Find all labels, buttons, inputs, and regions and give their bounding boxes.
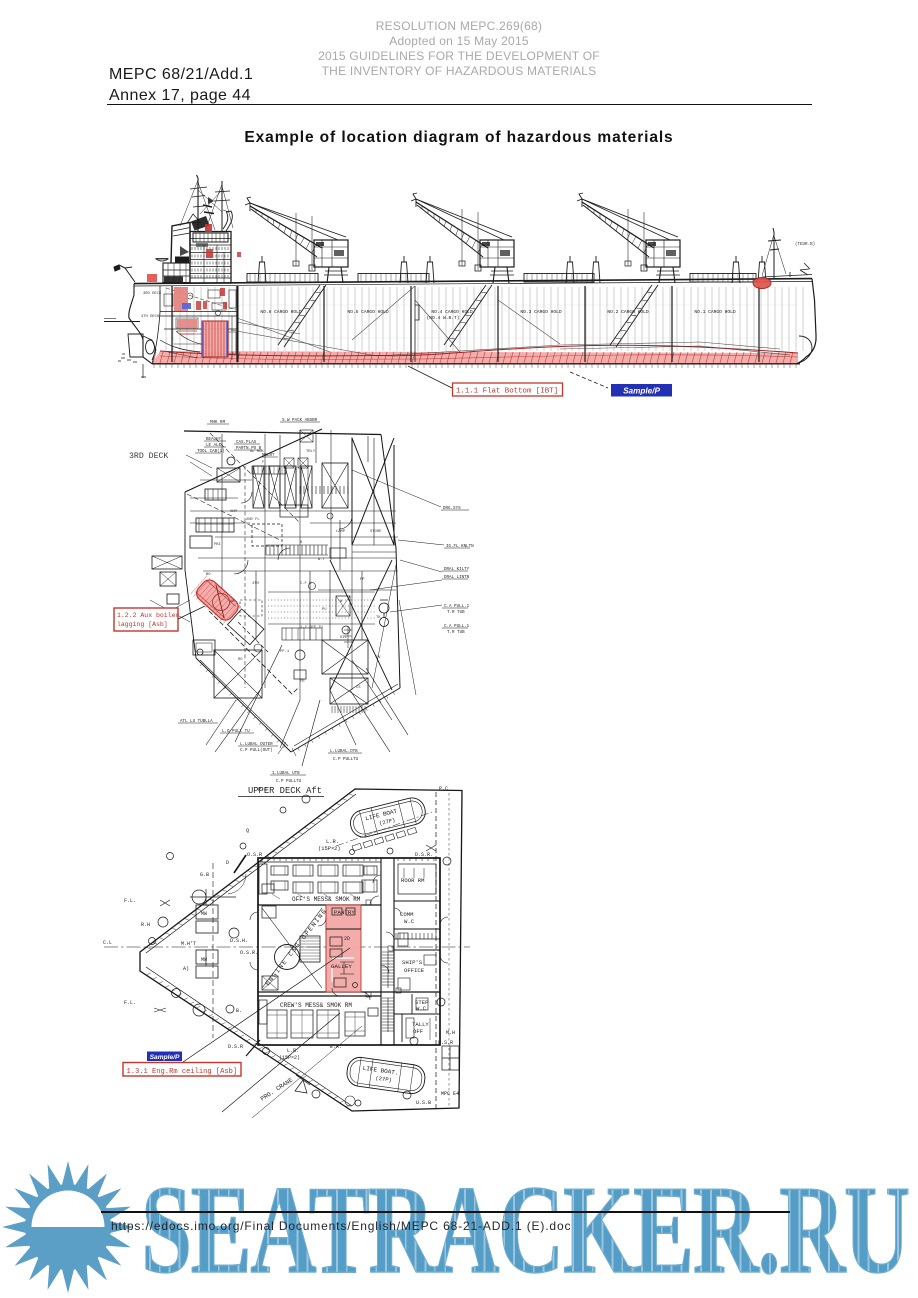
svg-text:(15P×2): (15P×2): [318, 846, 341, 852]
svg-text:W: W: [340, 600, 343, 604]
svg-text:L.R.: L.R.: [326, 839, 339, 845]
svg-text:O.S.R: O.S.R: [247, 852, 262, 858]
svg-text:1.LUBAL UTB: 1.LUBAL UTB: [272, 772, 300, 776]
svg-text:GALLEY: GALLEY: [331, 963, 352, 970]
svg-text:4TH: 4TH: [252, 582, 259, 586]
svg-text:(27P): (27P): [375, 1075, 392, 1084]
svg-text:4TH DECK: 4TH DECK: [141, 315, 160, 319]
svg-text:COMM: COMM: [400, 911, 413, 918]
svg-text:(NO.4 W.B.T): (NO.4 W.B.T): [426, 315, 459, 321]
svg-text:3RD DECK: 3RD DECK: [129, 452, 168, 461]
svg-text:AHM: AHM: [230, 510, 238, 514]
svg-text:F: F: [262, 461, 265, 465]
svg-text:PP: PP: [360, 578, 365, 582]
svg-text:OFF'S MESS& SMOK RM: OFF'S MESS& SMOK RM: [292, 896, 361, 903]
svg-text:B.: B.: [236, 1008, 242, 1014]
svg-text:D.S.R: D.S.R: [228, 1044, 243, 1050]
svg-text:SHIP'S: SHIP'S: [402, 959, 423, 966]
svg-text:IG.FL KNLTN: IG.FL KNLTN: [446, 545, 474, 549]
svg-text:NO.1 CARGO HOLD: NO.1 CARGO HOLD: [694, 309, 736, 315]
svg-text:D.S.H.: D.S.H.: [230, 938, 248, 944]
svg-text:F.L.: F.L.: [124, 898, 136, 904]
svg-text:W.C: W.C: [404, 918, 415, 925]
svg-text:Sample/P: Sample/P: [150, 1054, 180, 1061]
svg-text:RO: RO: [238, 658, 243, 662]
svg-text:LE ALE: LE ALE: [206, 444, 222, 448]
svg-text:TK: TK: [376, 616, 381, 620]
svg-text:MHK RM: MHK RM: [210, 421, 226, 425]
svg-text:C.P PULLTU: C.P PULLTU: [333, 758, 359, 762]
svg-text:P.C: P.C: [258, 787, 267, 793]
svg-text:1-2.SEP.TU: 1-2.SEP.TU: [300, 626, 324, 630]
svg-text:(TEUR.B): (TEUR.B): [795, 242, 815, 247]
svg-text:M.H: M.H: [446, 1030, 455, 1036]
svg-text:OFF: OFF: [413, 1028, 423, 1035]
svg-text:L.LUBAL.OTB: L.LUBAL.OTB: [330, 750, 358, 754]
svg-text:BO: BO: [206, 573, 211, 577]
svg-text:M.H'T: M.H'T: [181, 941, 196, 947]
svg-text:Q: Q: [246, 828, 249, 834]
svg-text:D: D: [226, 860, 229, 866]
svg-text:L.LUBAL OUTER: L.LUBAL OUTER: [240, 743, 273, 747]
svg-text:2ND FL: 2ND FL: [246, 518, 260, 522]
svg-text:MPC E4: MPC E4: [441, 1091, 459, 1097]
svg-text:S.W PACK ABSBR: S.W PACK ABSBR: [282, 419, 318, 423]
svg-text:(15P×2): (15P×2): [279, 1055, 300, 1061]
svg-text:U.S.B: U.S.B: [416, 1100, 431, 1106]
svg-text:W.C: W.C: [416, 1005, 427, 1012]
svg-text:U.S.R: U.S.R: [438, 1040, 453, 1046]
svg-text:CREW'S MESS& SMOK RM: CREW'S MESS& SMOK RM: [280, 1002, 352, 1009]
svg-text:OFFICE: OFFICE: [404, 967, 425, 974]
svg-text:FR: FR: [300, 680, 305, 684]
svg-text:CAS.PLAS: CAS.PLAS: [236, 441, 257, 445]
svg-text:EV: EV: [376, 656, 381, 660]
svg-text:NO.3 CARGO HOLD: NO.3 CARGO HOLD: [520, 309, 562, 315]
svg-text:C.A PULL.1: C.A PULL.1: [444, 625, 470, 629]
svg-text:C.A PULL.1: C.A PULL.1: [444, 605, 470, 609]
svg-text:C.F.W: C.F.W: [300, 582, 312, 586]
svg-text:1.3.1 Eng.Rm ceiling [Asb]: 1.3.1 Eng.Rm ceiling [Asb]: [127, 1068, 238, 1076]
svg-text:PRO. CRANE: PRO. CRANE: [259, 1076, 294, 1102]
svg-text:D.S.R.: D.S.R.: [415, 852, 433, 858]
svg-text:2D: 2D: [344, 936, 350, 942]
svg-text:NO.6 CARGO HOLD: NO.6 CARGO HOLD: [260, 309, 302, 315]
svg-text:L.O PULL TU: L.O PULL TU: [222, 730, 250, 734]
svg-text:ROOR RM: ROOR RM: [401, 877, 425, 884]
svg-text:DRAL LINTN: DRAL LINTN: [444, 576, 470, 580]
svg-text:T.R TUB: T.R TUB: [447, 611, 465, 615]
svg-text:G.B: G.B: [200, 872, 209, 878]
svg-text:BEACHY: BEACHY: [206, 438, 222, 442]
svg-text:1.1.1 Flat Bottom [IBT]: 1.1.1 Flat Bottom [IBT]: [456, 388, 558, 396]
svg-text:lagging [Asb]: lagging [Asb]: [117, 621, 168, 628]
svg-text:LAMP: LAMP: [336, 530, 346, 534]
svg-text:PU: PU: [322, 608, 327, 612]
svg-text:E.R.: E.R.: [330, 1044, 342, 1050]
svg-text:ATL LU TUBLLA: ATL LU TUBLLA: [180, 720, 213, 724]
svg-text:1.2.2 Aux boiler: 1.2.2 Aux boiler: [117, 612, 180, 619]
svg-text:MELR?: MELR?: [262, 454, 275, 458]
svg-text:AB: AB: [230, 600, 235, 604]
svg-text:3RD DECK: 3RD DECK: [143, 292, 162, 296]
svg-text:AL MOK: AL MOK: [250, 450, 264, 454]
svg-text:OIL: OIL: [340, 636, 348, 640]
svg-text:TRLY: TRLY: [306, 450, 316, 454]
svg-text:PP.1: PP.1: [280, 650, 290, 654]
svg-text:C.P PULL(OUT): C.P PULL(OUT): [240, 748, 273, 753]
svg-text:DRG.SYS: DRG.SYS: [443, 507, 461, 511]
svg-text:PANTRY: PANTRY: [334, 909, 355, 916]
svg-text:B: B: [300, 541, 303, 545]
svg-text:A): A): [183, 966, 189, 972]
svg-text:TALLY: TALLY: [412, 1021, 429, 1028]
svg-text:C.L: C.L: [103, 940, 112, 946]
svg-text:CS: CS: [356, 686, 361, 690]
svg-text:O.S.R.: O.S.R.: [240, 950, 258, 956]
svg-text:Sample/P: Sample/P: [623, 387, 660, 396]
svg-text:MW: MW: [201, 957, 207, 963]
svg-text:STORE: STORE: [370, 530, 382, 534]
svg-text:MW: MW: [201, 911, 207, 917]
svg-text:T.R TUB: T.R TUB: [447, 631, 465, 635]
svg-text:P.C: P.C: [439, 786, 448, 792]
svg-text:W.T: W.T: [318, 558, 326, 562]
svg-text:PBI: PBI: [214, 543, 221, 547]
svg-text:DRAL KILTY: DRAL KILTY: [444, 568, 470, 572]
svg-text:F.L.: F.L.: [124, 1000, 136, 1006]
svg-text:R.H: R.H: [141, 922, 150, 928]
svg-text:NO.2 CARGO HOLD: NO.2 CARGO HOLD: [607, 309, 649, 315]
